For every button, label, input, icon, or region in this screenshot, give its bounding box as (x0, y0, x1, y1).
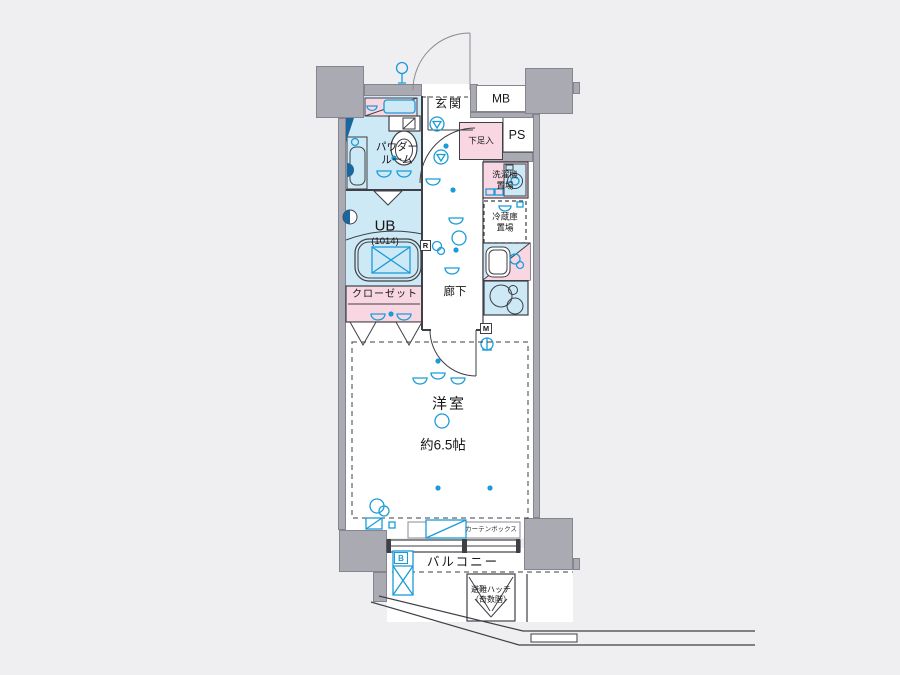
label-ub: UB (375, 218, 396, 237)
label-closet: クローゼット (352, 289, 418, 302)
m-meter-icon (481, 338, 493, 350)
label-powder-room: パウダー ルーム (376, 141, 418, 167)
chip-b-drain: B (394, 552, 408, 564)
label-fridge: 冷蔵庫 置場 (492, 211, 518, 232)
label-washer: 洗濯機 置場 (492, 169, 518, 190)
ub-door-icon (374, 191, 402, 205)
vanity-icon (346, 118, 367, 189)
label-balcony: バルコニー (427, 555, 499, 571)
label-curtain-box: カーテンボックス (465, 526, 517, 534)
label-ub-dim: (1014) (371, 236, 398, 248)
label-genkan: 玄関 (435, 97, 463, 112)
room-door-icon (422, 330, 483, 376)
balcony-rail (371, 596, 755, 645)
label-hallway: 廊下 (444, 285, 467, 299)
ceiling-light-icon (435, 414, 449, 428)
powder-shelf-icon (365, 98, 417, 116)
floor-plan-canvas: 玄関 MB PS 下足入 洗濯機 置場 冷蔵庫 置場 パウダー ルーム UB (… (0, 0, 900, 675)
label-ps: PS (509, 128, 526, 144)
western-room-marks (352, 342, 528, 529)
label-mb: MB (492, 92, 510, 107)
outlet-icons (366, 499, 395, 529)
label-room-size: 約6.5帖 (420, 438, 466, 455)
kitchen-sink-icon (483, 243, 530, 280)
stove-icon (484, 281, 528, 315)
chip-m-meter: M (480, 323, 492, 334)
label-shoe-box: 下足入 (468, 136, 494, 147)
label-western-room: 洋室 (432, 396, 466, 415)
chip-r-remote: R (420, 240, 431, 251)
label-hatch: 避難ハッチ （奇数階） (471, 585, 511, 605)
